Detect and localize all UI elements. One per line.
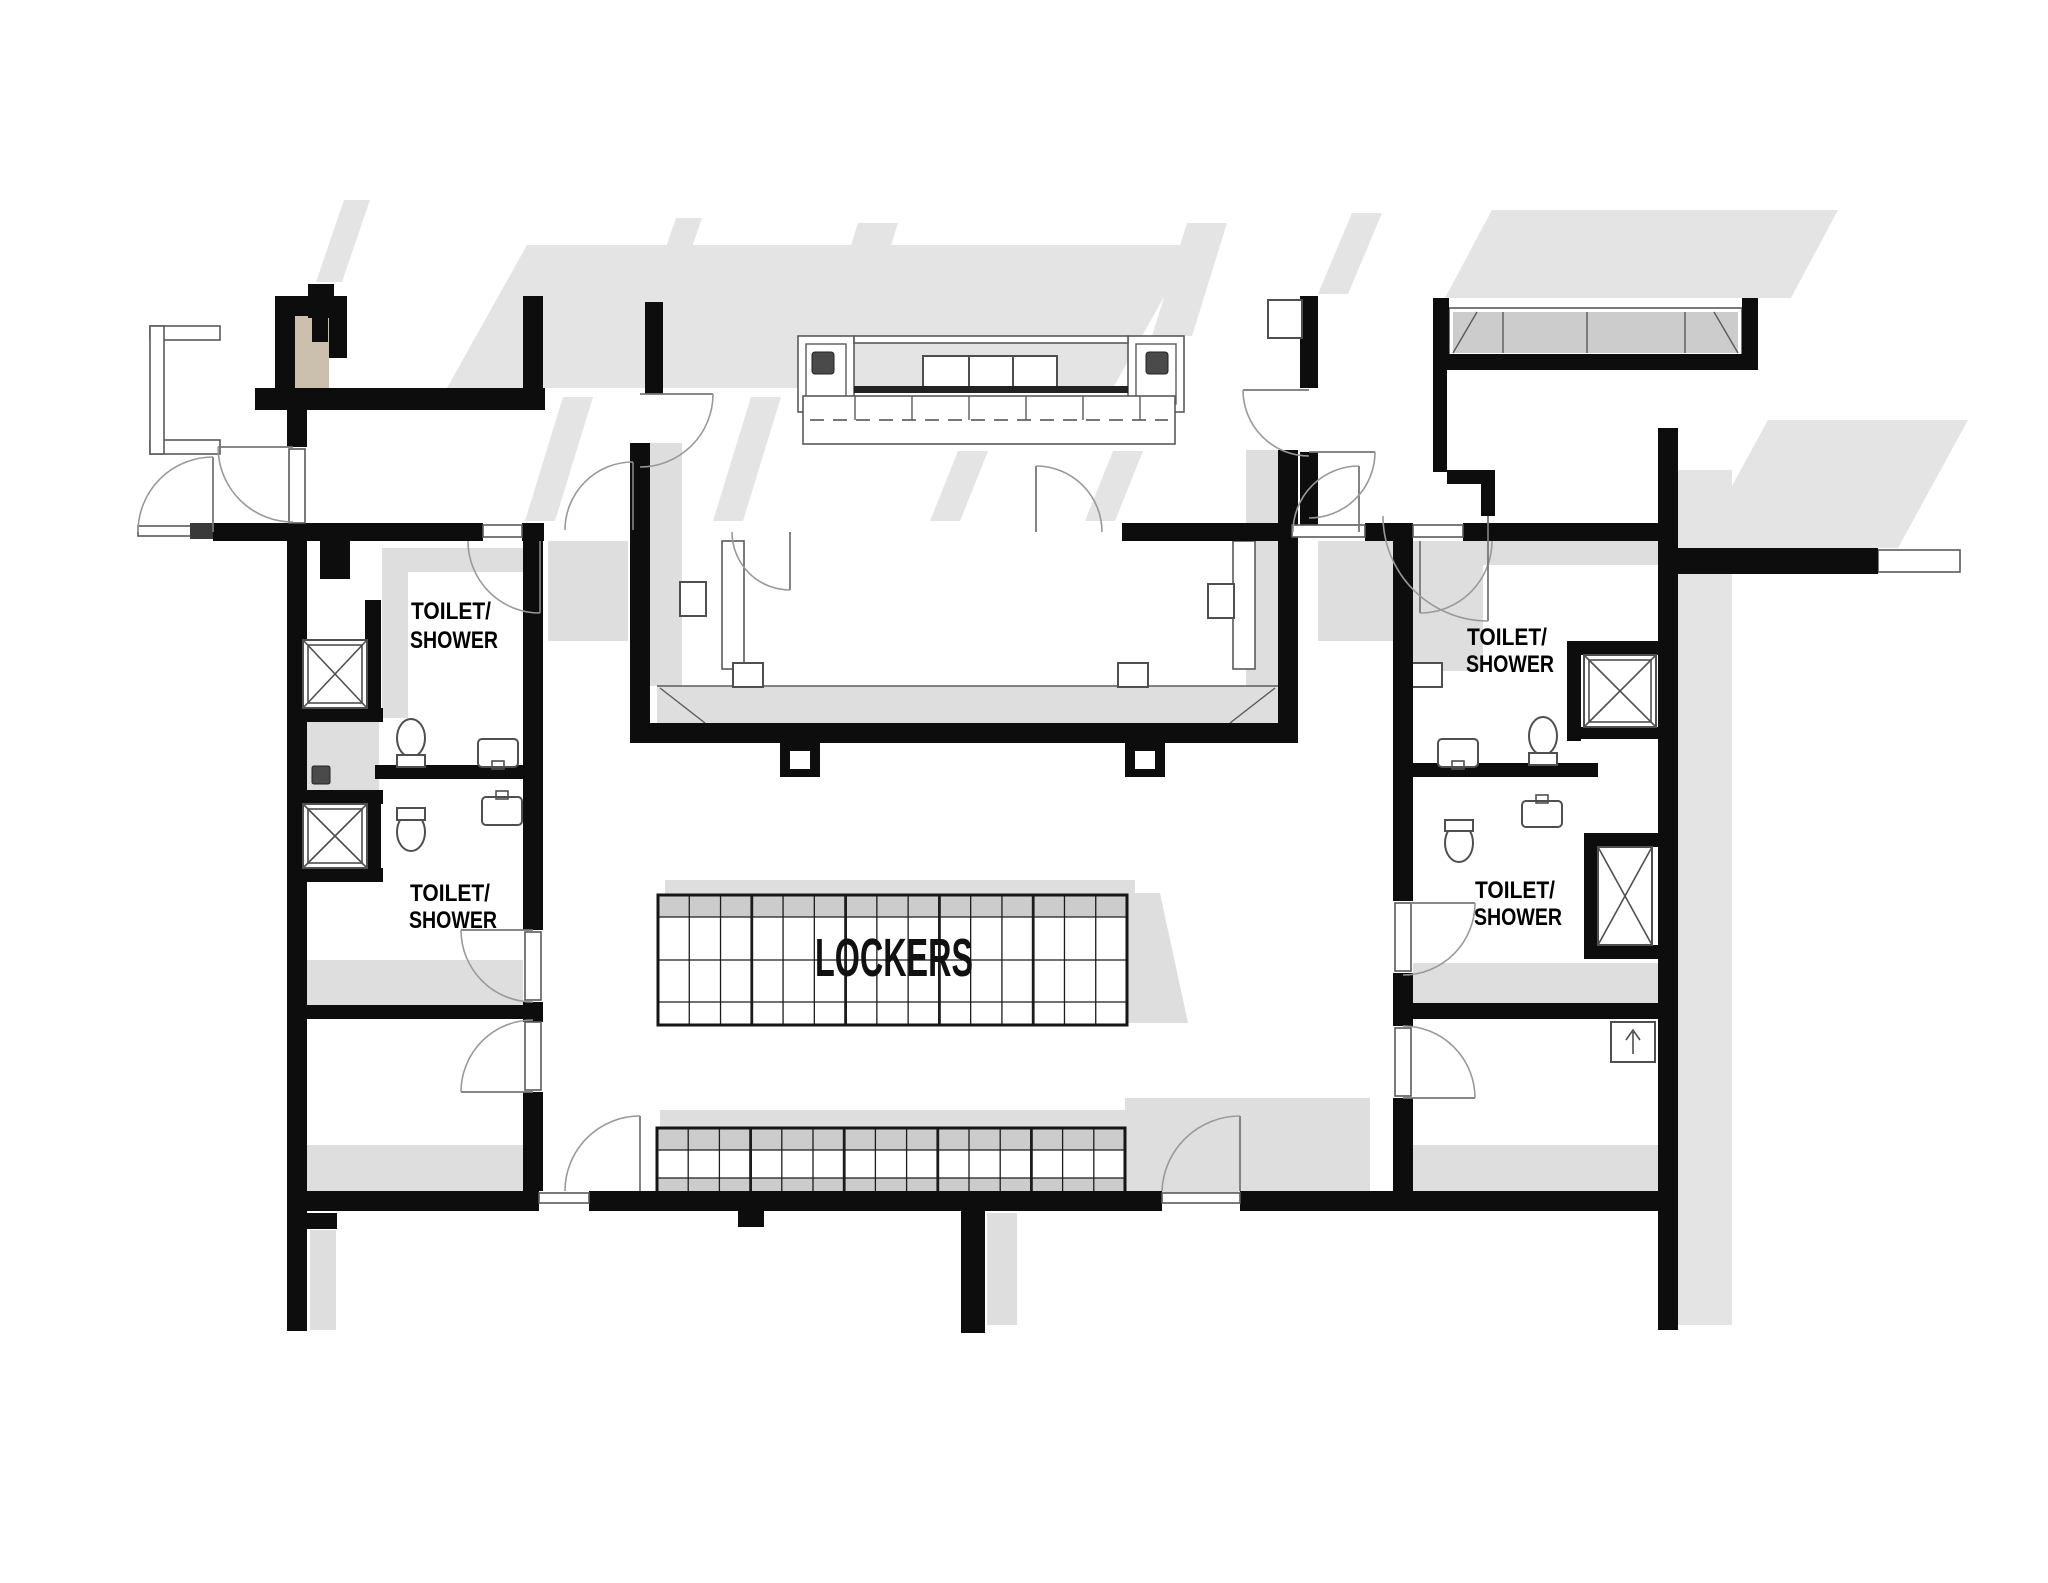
lavatory-sink [969,356,1013,388]
bench-top-center [803,396,1175,444]
room-label-line1: TOILET/ [1467,624,1547,651]
shower-partition [722,541,744,669]
room-label-line2: SHOWER [1466,651,1554,678]
lockers-label: LOCKERS [815,928,973,988]
fold-down-seat [680,582,706,616]
shower-stall [1584,655,1656,727]
shower-stall [1598,847,1652,945]
right-edge-wall-extension [1878,550,1960,572]
door-swing [1243,390,1309,456]
locker-bank-bottom [657,1128,1125,1195]
sink-fixture [1522,795,1562,827]
bench-top-right [1449,308,1742,357]
shower-stall [303,640,367,708]
door-swing [565,462,633,530]
sink-fixture [482,791,522,825]
wall-cabinet [1268,300,1302,338]
room-label-toilet-shower-upper-left: TOILET/ SHOWER [410,598,498,654]
stool [1118,663,1148,687]
room-label-line1: TOILET/ [411,598,491,625]
room-label-toilet-shower-lower-left: TOILET/ SHOWER [409,880,497,934]
door-swing [461,1020,533,1092]
room-label-line2: SHOWER [410,627,498,654]
toilet-fixture [397,808,425,851]
door-swing [1309,452,1375,518]
left-edge-casework [138,326,220,536]
door-swing [218,447,293,522]
sink-fixture [1438,739,1478,769]
door-swing [1036,466,1102,532]
room-label-line1: TOILET/ [410,880,490,907]
door-swing [138,457,213,532]
shower-partition [1233,541,1255,669]
fold-down-seat [1208,584,1234,618]
vanity-dark-square-left [812,352,834,374]
toilet-fixture [1445,820,1473,862]
vanity-dark-square-right [1146,352,1168,374]
room-label-line2: SHOWER [409,907,497,934]
toilet-fixture [397,719,425,767]
room-label-line2: SHOWER [1474,904,1562,931]
sink-fixture [478,739,518,769]
stool [733,663,763,687]
door-swing [565,1116,640,1191]
lavatory-sink [1013,356,1057,388]
stool [1412,663,1442,687]
floor-plan: LOCKERS [0,0,2048,1583]
toilet-fixture [1529,717,1557,765]
shower-stall [303,804,367,868]
room-label-toilet-shower-upper-right: TOILET/ SHOWER [1466,624,1554,678]
door-swing [1403,1026,1475,1098]
utility-sink [1611,1022,1655,1062]
floor-drain [312,766,330,784]
room-label-line1: TOILET/ [1475,877,1555,904]
room-label-toilet-shower-lower-right: TOILET/ SHOWER [1474,877,1562,931]
lavatory-sink [923,356,969,388]
